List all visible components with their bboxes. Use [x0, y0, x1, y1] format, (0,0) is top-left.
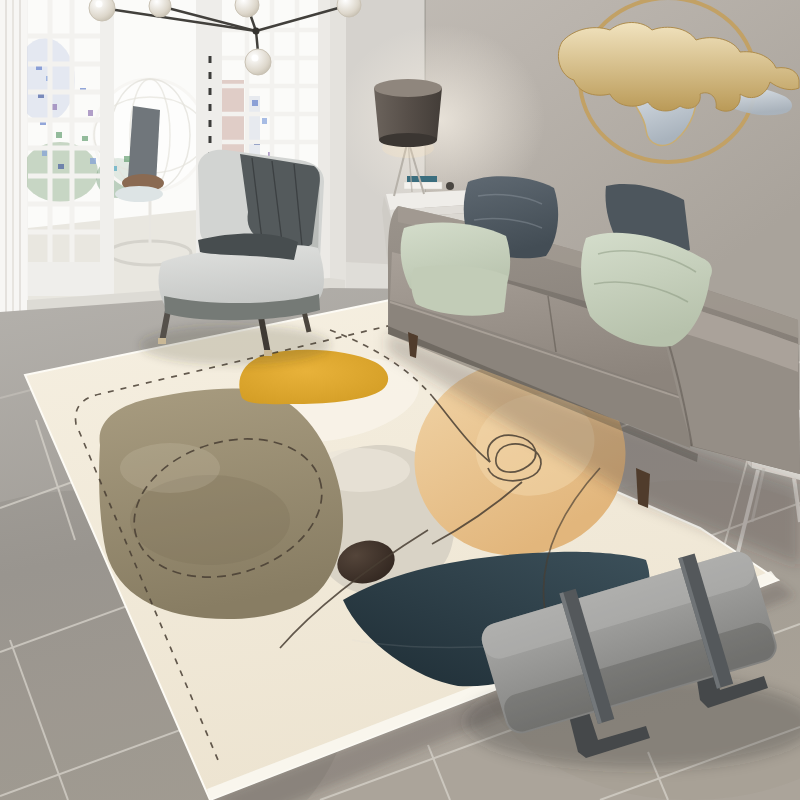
khaki-highlight	[120, 443, 220, 493]
lamp-shade-bottom	[379, 133, 437, 147]
sofa-leg-right	[636, 468, 650, 508]
scene-canvas	[0, 0, 800, 800]
egg-chair-pad	[115, 186, 163, 202]
chair-foot-cap-2	[264, 350, 272, 356]
egg-chair-back-cushion	[128, 106, 160, 184]
chair-shadow	[140, 325, 330, 365]
pendant-hub	[253, 28, 260, 35]
living-room-photo	[0, 0, 800, 800]
chair-foot-cap	[158, 338, 166, 344]
greenery	[22, 142, 98, 202]
door-bottom-rail	[28, 262, 100, 296]
sheer-curtain	[0, 0, 27, 320]
window-trim	[330, 0, 346, 305]
window-stile	[100, 0, 114, 302]
lamp-shade-top	[374, 79, 442, 97]
